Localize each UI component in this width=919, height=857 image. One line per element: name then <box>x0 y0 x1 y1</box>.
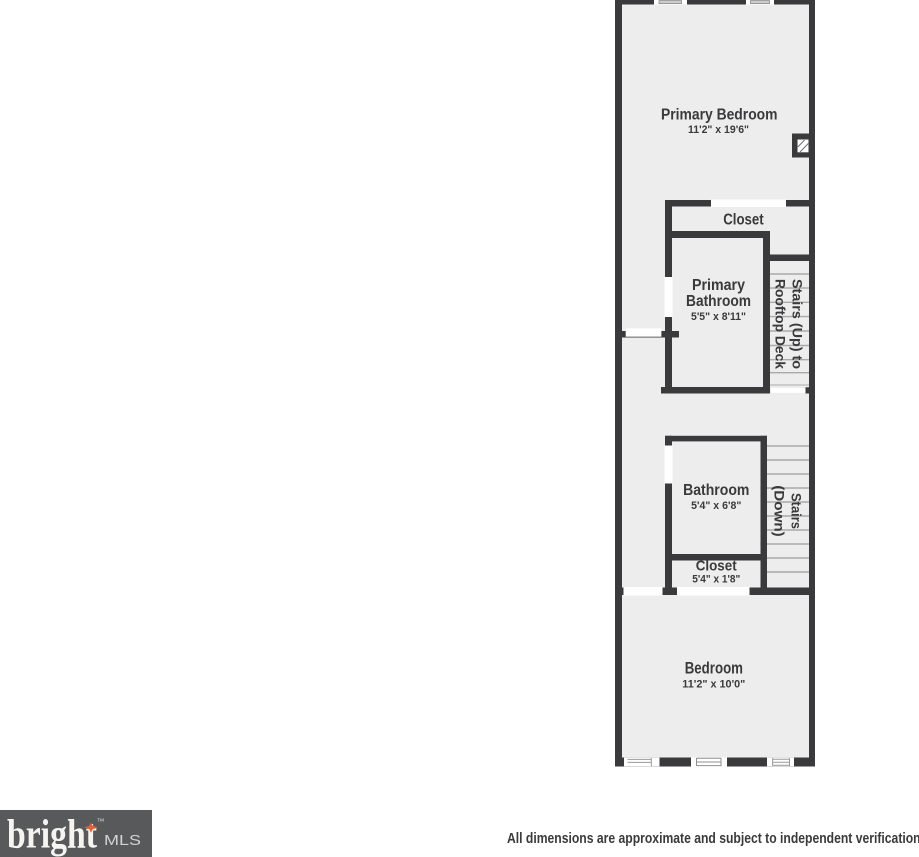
svg-text:Bathroom: Bathroom <box>686 293 751 310</box>
svg-text:Primary Bedroom: Primary Bedroom <box>661 107 778 124</box>
svg-text:All dimensions are approximate: All dimensions are approximate and subje… <box>507 831 919 847</box>
svg-text:Closet: Closet <box>696 558 737 575</box>
svg-text:11'2" x 19'6": 11'2" x 19'6" <box>688 124 749 136</box>
svg-text:5'4" x 6'8": 5'4" x 6'8" <box>691 500 741 512</box>
svg-text:Stairs: Stairs <box>789 493 805 529</box>
svg-text:Closet: Closet <box>723 212 764 229</box>
svg-text:(Down): (Down) <box>772 485 788 537</box>
svg-text:Primary: Primary <box>692 277 745 294</box>
svg-text:Bathroom: Bathroom <box>683 482 749 499</box>
svg-text:Rooftop Deck: Rooftop Deck <box>773 279 789 369</box>
svg-text:5'4" x 1'8": 5'4" x 1'8" <box>692 573 740 585</box>
svg-text:Stairs (Up) to: Stairs (Up) to <box>790 279 806 369</box>
svg-text:MLS: MLS <box>104 832 141 849</box>
svg-text:11'2" x 10'0": 11'2" x 10'0" <box>682 678 745 690</box>
svg-text:bright: bright <box>7 811 97 857</box>
svg-text:™: ™ <box>97 817 105 826</box>
svg-text:5'5" x 8'11": 5'5" x 8'11" <box>691 311 746 323</box>
svg-text:Bedroom: Bedroom <box>685 660 743 678</box>
